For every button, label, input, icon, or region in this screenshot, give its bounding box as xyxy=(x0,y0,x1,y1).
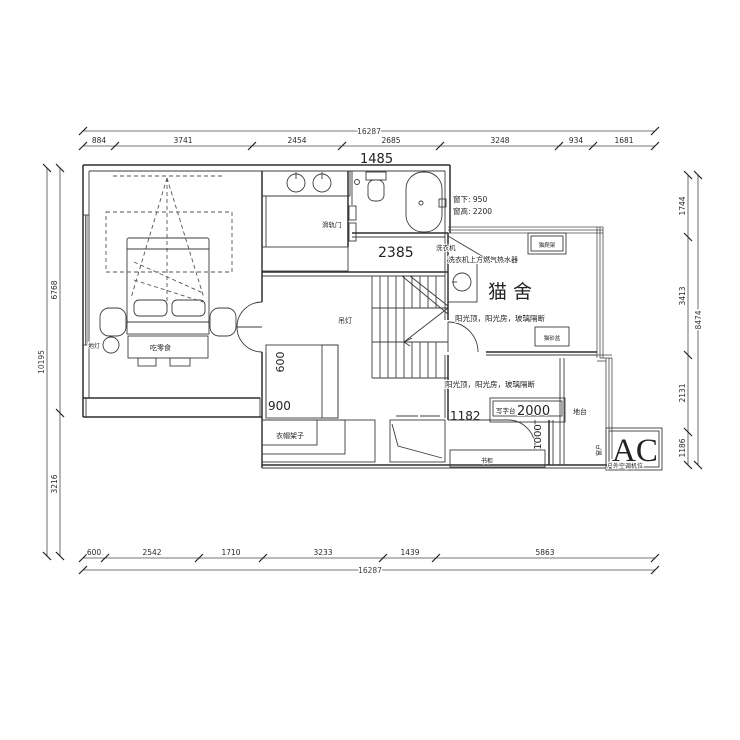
sliding-door-label: 滑轨门 xyxy=(322,220,342,229)
dim-right-0: 1744 xyxy=(678,196,687,215)
washing-machine-label: 洗衣机 xyxy=(436,243,456,252)
sunroom-note-upper: 阳光顶，阳光房，玻璃隔断 xyxy=(455,313,545,323)
coat-rack-shelves: 衣帽架子 xyxy=(262,420,375,462)
wardrobe-hatch xyxy=(262,247,348,271)
stair-treads-middle xyxy=(380,308,404,342)
dim-bot-2: 1710 xyxy=(221,548,240,557)
dim-right-2: 2131 xyxy=(678,383,687,402)
cat-tree-label: 猫爬架 xyxy=(539,241,556,249)
dim-top-3: 2685 xyxy=(381,136,400,145)
corridor: 2385 600 900 xyxy=(237,171,448,418)
dim-right-3: 1186 xyxy=(678,438,687,457)
glass-wall-top xyxy=(448,227,603,233)
pillow-left xyxy=(134,300,167,316)
dim-900-label: 900 xyxy=(268,399,291,413)
dimension-chain-top: 16287 884 3741 2454 2685 3248 934 1681 xyxy=(79,127,659,150)
dim-right-overall: 8474 xyxy=(694,310,703,329)
dim-1182-label: 1182 xyxy=(450,409,481,423)
dim-top-6: 1681 xyxy=(614,136,633,145)
sunroom-note-lower: 阳光顶，阳光房，玻璃隔断 xyxy=(445,379,535,389)
toilet xyxy=(366,172,386,201)
washing-machine xyxy=(448,262,477,302)
headboard xyxy=(127,322,209,334)
bed xyxy=(127,238,209,334)
floor-plan-sheet: 16287 884 3741 2454 2685 3248 934 1681 6… xyxy=(0,0,740,740)
bedroom: 吃零食 地灯 xyxy=(88,176,236,366)
bathtub xyxy=(406,172,446,232)
litter-box: 猫砂盆 xyxy=(535,327,569,346)
dim-top-2: 2454 xyxy=(287,136,306,145)
snack-bench: 吃零食 xyxy=(128,336,208,366)
floor-lamp-label: 地灯 xyxy=(88,342,100,350)
dim-bottom-overall: 16287 xyxy=(358,566,382,575)
dim-top-0: 884 xyxy=(92,136,107,145)
pendant-lamp-label: 吊灯 xyxy=(338,316,352,325)
dim-bot-5: 5863 xyxy=(535,548,554,557)
vanity-double-sink xyxy=(262,171,350,196)
hatched-wall-bedroom-south xyxy=(86,398,260,417)
pillow-right xyxy=(172,300,205,316)
closet-hatch xyxy=(322,345,338,418)
ac-note-label: 户外空调机位 xyxy=(607,462,643,470)
window-note: 窗下: 950 窗高: 2200 xyxy=(453,194,492,216)
dim-1000-label: 1000 xyxy=(533,424,544,449)
snack-bench-label: 吃零食 xyxy=(150,343,171,352)
dim-left-overall: 10195 xyxy=(37,350,46,374)
window-note-line1: 窗下: 950 xyxy=(453,194,487,204)
stair-treads-lower xyxy=(380,342,436,378)
floor-plan-drawing: 16287 884 3741 2454 2685 3248 934 1681 6… xyxy=(0,0,740,740)
water-heater-note: 洗衣机上方燃气热水器 xyxy=(448,255,518,264)
coat-rack-label: 衣帽架子 xyxy=(276,431,304,440)
ac-unit: AC 户外空调机位 窗户 xyxy=(595,428,662,470)
dim-600-label: 600 xyxy=(274,352,287,373)
cat-house-label: 猫舍 xyxy=(488,281,538,303)
dim-2385-label: 2385 xyxy=(378,245,414,261)
cat-tree: 猫爬架 xyxy=(528,233,566,254)
nightstand-right xyxy=(210,308,236,336)
dimension-chain-left: 6768 3216 10195 xyxy=(37,164,64,560)
nightstand-left xyxy=(100,308,126,336)
dim-left-1: 3216 xyxy=(50,474,59,493)
folding-unit xyxy=(390,416,445,462)
litter-box-label: 猫砂盆 xyxy=(544,334,561,342)
projection-zone-dashed xyxy=(106,212,232,272)
dim-bot-4: 1439 xyxy=(400,548,419,557)
desk-width-label: 2000 xyxy=(517,404,550,419)
study-sunroom: 阳光顶，阳光房，玻璃隔断 写字台 2000 1182 1000 地台 书柜 xyxy=(445,355,587,467)
staircase: 吊灯 xyxy=(338,276,448,378)
cat-room: 洗衣机 洗衣机上方燃气热水器 猫舍 猫爬架 阳光顶，阳光房，玻璃隔断 猫砂盆 窗… xyxy=(436,194,612,465)
desk: 写字台 2000 xyxy=(490,398,565,422)
dim-1485-label: 1485 xyxy=(360,152,393,167)
dim-top-5: 934 xyxy=(569,136,584,145)
dim-right-1: 3413 xyxy=(678,286,687,305)
desk-label: 写字台 xyxy=(496,406,516,415)
dim-bot-1: 2542 xyxy=(142,548,161,557)
entry-lower-area: 衣帽架子 xyxy=(262,416,445,462)
bathroom: 1485 滑轨门 xyxy=(262,152,448,247)
cat-room-door xyxy=(448,322,478,352)
bathtub-drain xyxy=(419,201,423,205)
dimension-chain-bottom: 600 2542 1710 3233 1439 5863 16287 xyxy=(79,548,659,575)
projector-cone-dashed xyxy=(131,178,204,312)
double-door xyxy=(237,302,262,352)
window-note-line2: 窗高: 2200 xyxy=(453,206,492,216)
dim-bot-3: 3233 xyxy=(313,548,332,557)
glass-wall-right xyxy=(597,227,612,465)
sliding-door xyxy=(349,206,356,241)
stair-break-lines xyxy=(402,276,448,346)
bookcase-label: 书柜 xyxy=(481,457,493,465)
dim-top-1: 3741 xyxy=(173,136,192,145)
dim-left-0: 6768 xyxy=(50,280,59,299)
study-door: 1000 xyxy=(448,420,544,450)
floor-drain xyxy=(355,180,360,185)
floor-lamp xyxy=(103,337,119,353)
dimension-chain-right: 1744 3413 2131 1186 8474 xyxy=(678,171,703,469)
dim-top-overall: 16287 xyxy=(357,127,381,136)
platform-label: 地台 xyxy=(573,407,587,416)
dim-bot-0: 600 xyxy=(87,548,102,557)
window-label: 窗户 xyxy=(595,444,603,456)
dim-top-4: 3248 xyxy=(490,136,509,145)
